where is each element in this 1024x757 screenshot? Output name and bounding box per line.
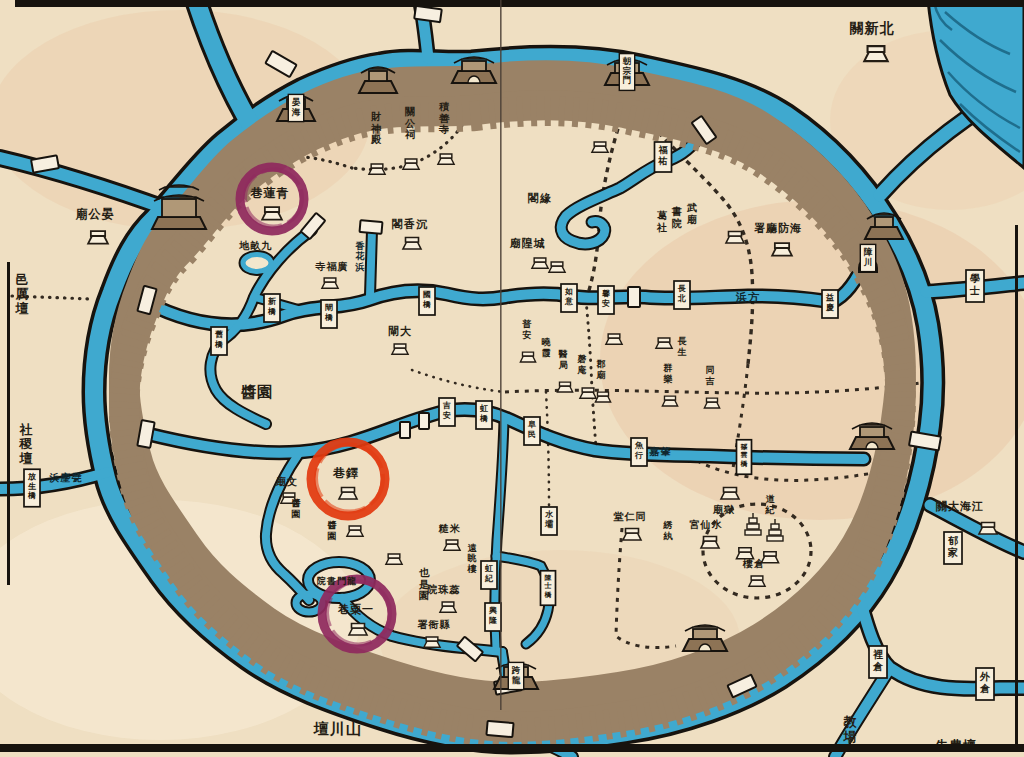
building-icon bbox=[440, 602, 456, 612]
bridge-name-box: 阜民 bbox=[524, 417, 540, 445]
bridge-name-box: 虹紀 bbox=[481, 561, 497, 589]
svg-text:廟公晏: 廟公晏 bbox=[75, 207, 115, 221]
map-label: 浜麈甓 bbox=[49, 471, 83, 483]
bridge bbox=[419, 413, 429, 429]
historical-city-map: 晏海朝宗門跨龍障川 關新北廟公晏邑厲壇社稷壇壇川山教場先農壇署廳防海浜方浜嘉肇浜… bbox=[0, 0, 1024, 757]
building-icon bbox=[701, 537, 719, 549]
svg-text:魚行: 魚行 bbox=[634, 440, 644, 460]
map-label: 磬庵 bbox=[577, 354, 587, 375]
building-icon bbox=[606, 334, 622, 344]
svg-text:醬園: 醬園 bbox=[240, 383, 273, 401]
svg-text:堂仁同: 堂仁同 bbox=[613, 511, 647, 522]
svg-text:虹紀: 虹紀 bbox=[484, 563, 494, 583]
svg-text:廟獄: 廟獄 bbox=[712, 504, 735, 515]
svg-text:武廟: 武廟 bbox=[686, 202, 697, 225]
building-icon bbox=[580, 388, 596, 398]
bridge bbox=[628, 287, 640, 307]
building-icon bbox=[557, 382, 572, 392]
svg-text:也是園: 也是園 bbox=[418, 567, 430, 601]
building-icon bbox=[656, 338, 672, 348]
map-label: 地畝九 bbox=[239, 240, 273, 251]
bridge bbox=[414, 6, 442, 22]
svg-text:益慶: 益慶 bbox=[825, 292, 834, 312]
svg-text:關大海江: 關大海江 bbox=[936, 500, 984, 513]
bridge bbox=[486, 721, 513, 737]
svg-text:署衙縣: 署衙縣 bbox=[417, 619, 451, 630]
map-label: 浜方 bbox=[735, 291, 760, 304]
svg-text:閣香沉: 閣香沉 bbox=[392, 218, 428, 231]
map-canvas: 晏海朝宗門跨龍障川 關新北廟公晏邑厲壇社稷壇壇川山教場先農壇署廳防海浜方浜嘉肇浜… bbox=[0, 0, 1024, 757]
svg-text:跨龍: 跨龍 bbox=[511, 665, 521, 685]
svg-text:裡倉: 裡倉 bbox=[872, 649, 884, 672]
svg-text:新橋: 新橋 bbox=[267, 296, 276, 316]
svg-text:興隆: 興隆 bbox=[488, 605, 497, 625]
svg-text:馨安: 馨安 bbox=[601, 288, 610, 308]
svg-text:關新北: 關新北 bbox=[850, 20, 895, 36]
map-label: 道紀 bbox=[765, 494, 776, 515]
bridge-name-box: 國橋 bbox=[419, 287, 435, 315]
svg-text:篠雲橋: 篠雲橋 bbox=[740, 442, 749, 468]
map-label: 壇川山 bbox=[313, 720, 362, 738]
bridge-name-box: 虹橋 bbox=[476, 401, 492, 429]
svg-text:吉安: 吉安 bbox=[442, 400, 451, 420]
bridge-name-box: 益慶 bbox=[822, 290, 838, 318]
svg-text:壇川山: 壇川山 bbox=[313, 720, 362, 738]
building-icon bbox=[623, 529, 641, 541]
wall-gate bbox=[683, 625, 727, 651]
svg-text:長生: 長生 bbox=[677, 336, 687, 357]
svg-text:巷蓮青: 巷蓮青 bbox=[250, 186, 290, 200]
svg-text:遠眺樓: 遠眺樓 bbox=[467, 543, 478, 574]
bridge-name-box: 閘橋 bbox=[321, 300, 337, 328]
svg-text:閘橋: 閘橋 bbox=[324, 302, 333, 322]
bridge-name-box: 福祐 bbox=[655, 142, 672, 172]
wall-tower: 晏海 bbox=[277, 94, 315, 121]
wall-gate bbox=[452, 57, 496, 83]
map-label: 醬園 bbox=[327, 520, 337, 541]
svg-text:同吉: 同吉 bbox=[705, 365, 715, 386]
building-icon bbox=[726, 232, 744, 244]
bridge-name-box: 放生橋 bbox=[24, 469, 40, 507]
svg-text:地畝九: 地畝九 bbox=[239, 240, 273, 251]
svg-text:曉霞: 曉霞 bbox=[542, 337, 552, 358]
svg-text:閣緣: 閣緣 bbox=[528, 192, 552, 205]
svg-text:外倉: 外倉 bbox=[979, 671, 991, 694]
building-icon bbox=[721, 488, 739, 500]
svg-text:普安: 普安 bbox=[522, 318, 532, 340]
building-icon bbox=[403, 238, 421, 250]
building-icon bbox=[438, 154, 454, 164]
wall-gate: 障川 bbox=[859, 244, 877, 272]
building-icon bbox=[532, 258, 548, 268]
bridge-name-box: 舊橋 bbox=[211, 327, 227, 355]
bridge-name-box: 吉安 bbox=[439, 398, 455, 426]
svg-text:邑厲壇: 邑厲壇 bbox=[15, 272, 29, 316]
svg-text:長北: 長北 bbox=[677, 283, 686, 303]
svg-text:障川: 障川 bbox=[863, 247, 873, 267]
svg-text:醬園: 醬園 bbox=[291, 498, 301, 519]
svg-text:陳士橋: 陳士橋 bbox=[544, 573, 553, 599]
svg-text:香花浜: 香花浜 bbox=[355, 241, 366, 272]
building-icon bbox=[392, 344, 408, 354]
building-icon bbox=[424, 637, 440, 647]
bridge-name-box: 興隆 bbox=[485, 603, 501, 631]
building-icon bbox=[549, 262, 565, 272]
bridge-name-box: 魚行 bbox=[631, 438, 647, 466]
svg-text:朝宗門: 朝宗門 bbox=[622, 56, 632, 85]
svg-text:綉紈: 綉紈 bbox=[663, 520, 674, 541]
building-icon bbox=[595, 392, 610, 402]
building-icon bbox=[403, 159, 419, 169]
svg-text:財神殿: 財神殿 bbox=[370, 111, 382, 145]
svg-text:舊橋: 舊橋 bbox=[214, 329, 223, 349]
svg-text:積善寺: 積善寺 bbox=[438, 101, 450, 135]
map-label: 曉霞 bbox=[542, 337, 552, 358]
bridge bbox=[400, 422, 410, 438]
bridge-name-box: 篠雲橋 bbox=[737, 440, 752, 475]
svg-text:寺福廣: 寺福廣 bbox=[315, 261, 349, 272]
building-icon bbox=[339, 488, 357, 500]
building-icon bbox=[979, 523, 997, 535]
svg-text:郡廟: 郡廟 bbox=[596, 359, 606, 380]
map-label: 教場 bbox=[843, 714, 858, 744]
svg-text:院珠蕊: 院珠蕊 bbox=[428, 584, 461, 595]
svg-text:廟文: 廟文 bbox=[275, 476, 298, 487]
building-icon bbox=[704, 398, 719, 408]
gate-name-label: 跨龍 bbox=[508, 662, 523, 689]
svg-text:學士: 學士 bbox=[969, 273, 980, 296]
building-icon bbox=[349, 624, 367, 636]
wall-tower bbox=[865, 213, 903, 239]
page-fold-line bbox=[500, 0, 502, 710]
map-label: 長生 bbox=[677, 336, 687, 357]
building-icon bbox=[444, 540, 460, 550]
paper-stain bbox=[600, 200, 1024, 520]
map-label: 廟隍城 bbox=[509, 237, 546, 250]
map-label: 也是園 bbox=[418, 567, 430, 601]
bridge-name-box: 馨安 bbox=[598, 286, 614, 314]
svg-text:浜方: 浜方 bbox=[735, 291, 760, 304]
building-icon bbox=[369, 164, 385, 174]
svg-text:教場: 教場 bbox=[843, 714, 858, 744]
map-label: 社稷壇 bbox=[19, 422, 33, 466]
svg-text:宮仙水: 宮仙水 bbox=[690, 519, 723, 530]
svg-text:巷鐸: 巷鐸 bbox=[332, 466, 359, 480]
bridge-name-box: 新橋 bbox=[264, 294, 280, 322]
map-label: 院書門龍 bbox=[317, 576, 357, 586]
svg-text:放生橋: 放生橋 bbox=[27, 471, 37, 500]
svg-text:虹橋: 虹橋 bbox=[479, 403, 488, 423]
svg-text:國橋: 國橋 bbox=[422, 289, 431, 309]
svg-text:醫局: 醫局 bbox=[558, 349, 568, 370]
svg-text:阜民: 阜民 bbox=[527, 419, 536, 439]
svg-text:署廳防海: 署廳防海 bbox=[754, 222, 802, 235]
building-icon bbox=[772, 243, 792, 256]
svg-text:醬園: 醬園 bbox=[327, 520, 337, 541]
gate-name-label: 障川 bbox=[860, 244, 875, 271]
svg-text:關公祠: 關公祠 bbox=[404, 106, 416, 140]
svg-text:廟隍城: 廟隍城 bbox=[509, 237, 546, 250]
map-label: 葛社 bbox=[656, 210, 667, 233]
svg-text:社稷壇: 社稷壇 bbox=[19, 422, 33, 466]
building-icon bbox=[322, 278, 338, 288]
svg-text:院書門龍: 院書門龍 bbox=[317, 576, 357, 586]
svg-text:糙米: 糙米 bbox=[438, 523, 461, 534]
bridge-name-box: 陳士橋 bbox=[541, 571, 556, 606]
svg-text:浜麈甓: 浜麈甓 bbox=[49, 471, 83, 483]
building-icon bbox=[347, 526, 363, 536]
svg-text:水壩: 水壩 bbox=[544, 509, 554, 529]
svg-text:書院: 書院 bbox=[671, 206, 682, 229]
building-icon bbox=[662, 396, 677, 406]
svg-text:群樂: 群樂 bbox=[663, 363, 673, 384]
svg-text:葛社: 葛社 bbox=[656, 210, 667, 233]
bridge-name-box: 外倉 bbox=[976, 668, 994, 700]
gate-name-label: 朝宗門 bbox=[619, 54, 634, 91]
bridge-name-box: 水壩 bbox=[541, 507, 557, 535]
wall-gate bbox=[850, 423, 894, 449]
bridge-name-box: 裡倉 bbox=[869, 646, 887, 678]
svg-text:福祐: 福祐 bbox=[658, 145, 668, 166]
svg-text:樓倉: 樓倉 bbox=[742, 558, 765, 569]
svg-text:晏海: 晏海 bbox=[291, 97, 301, 117]
map-label: 武廟 bbox=[686, 202, 697, 225]
building-icon bbox=[592, 142, 608, 152]
map-label: 書院 bbox=[671, 206, 682, 229]
building-icon bbox=[386, 554, 402, 564]
map-label: 閣緣 bbox=[528, 192, 552, 205]
svg-text:如意: 如意 bbox=[564, 286, 574, 306]
map-label: 香花浜 bbox=[355, 241, 366, 272]
bridge-name-box: 郁家 bbox=[944, 532, 962, 564]
building-icon bbox=[749, 576, 765, 586]
bridge-name-box: 長北 bbox=[674, 281, 690, 309]
map-label: 邑厲壇 bbox=[15, 272, 29, 316]
svg-text:磬庵: 磬庵 bbox=[577, 354, 587, 375]
wall-tower bbox=[359, 67, 397, 93]
bridge-name-box: 學士 bbox=[966, 270, 984, 302]
svg-text:閘大: 閘大 bbox=[388, 325, 412, 338]
building-icon bbox=[262, 207, 282, 220]
bridge-name-box: 如意 bbox=[561, 284, 577, 312]
map-label: 遠眺樓 bbox=[467, 543, 478, 574]
svg-text:巷粟一: 巷粟一 bbox=[337, 603, 374, 616]
svg-text:道紀: 道紀 bbox=[765, 494, 776, 515]
building-icon bbox=[520, 352, 535, 362]
bridge bbox=[360, 220, 383, 234]
map-label: 綉紈 bbox=[663, 520, 674, 541]
building-icon bbox=[864, 46, 887, 61]
map-label: 醬園 bbox=[291, 498, 301, 519]
building-icon bbox=[88, 231, 108, 244]
svg-text:郁家: 郁家 bbox=[947, 535, 958, 558]
gate-name-label: 晏海 bbox=[288, 94, 303, 121]
map-label: 醬園 bbox=[240, 383, 273, 401]
